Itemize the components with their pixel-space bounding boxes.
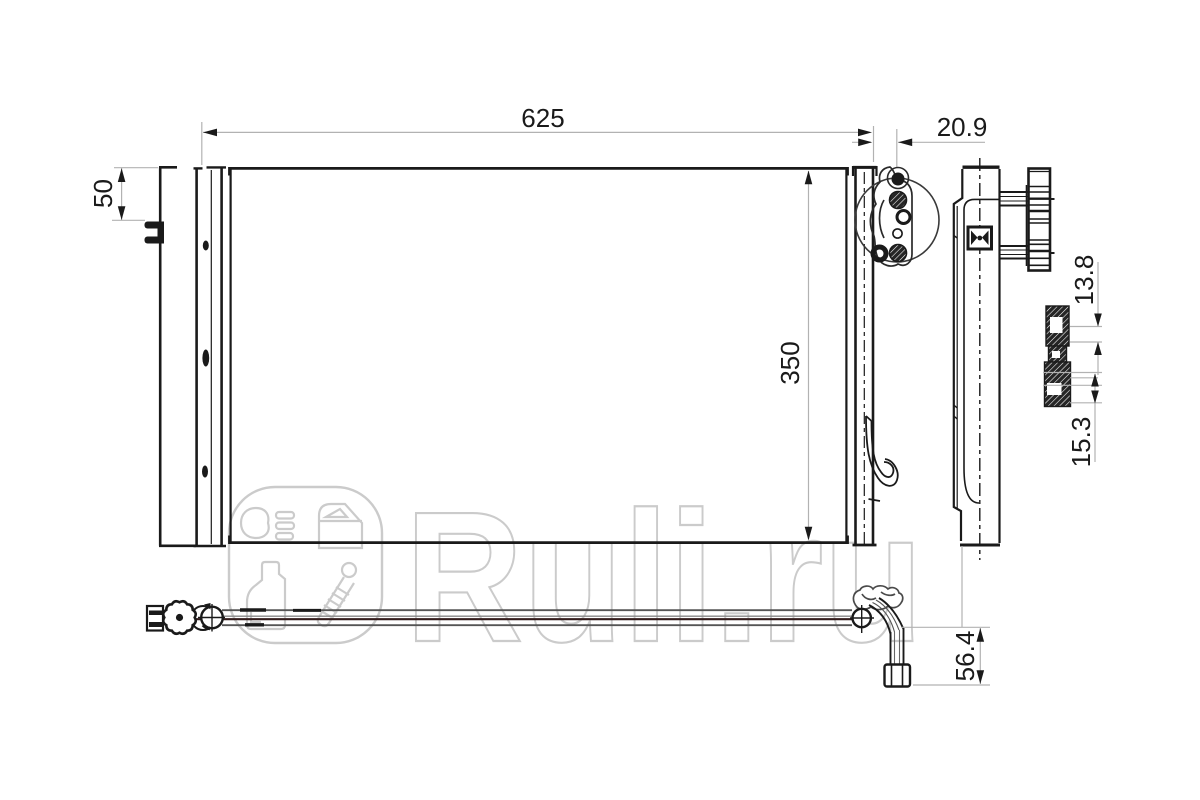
svg-text:20.9: 20.9 bbox=[937, 112, 988, 142]
svg-text:50: 50 bbox=[88, 179, 118, 208]
svg-text:56.4: 56.4 bbox=[950, 631, 980, 682]
svg-text:15.3: 15.3 bbox=[1066, 417, 1096, 468]
svg-text:13.8: 13.8 bbox=[1069, 255, 1099, 306]
svg-text:350: 350 bbox=[775, 341, 805, 384]
svg-text:625: 625 bbox=[521, 103, 564, 133]
